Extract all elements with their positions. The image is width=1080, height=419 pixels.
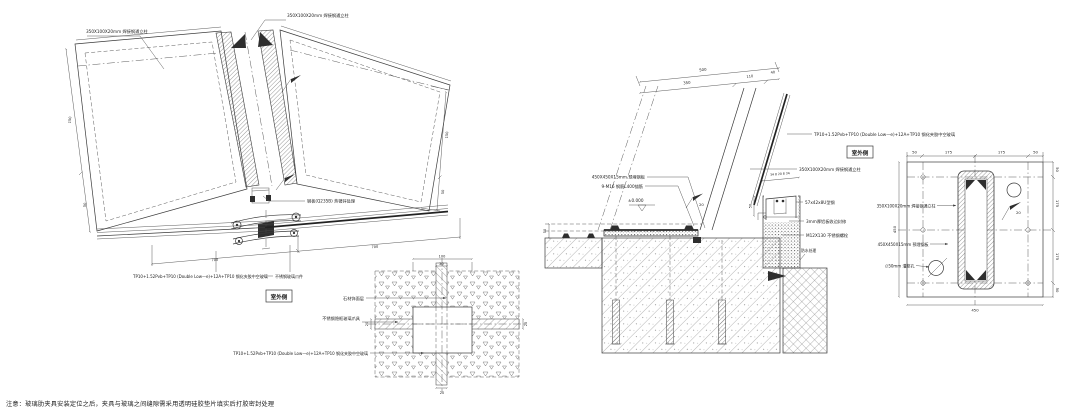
mullion-annotation: 350X100X20mm 焊接钢通立柱: [287, 12, 349, 19]
clamp-annotation: 不锈钢玻璃爪件: [275, 273, 303, 279]
dim-text: 50: [749, 204, 753, 208]
dim-text: 50: [1033, 150, 1038, 155]
glass-spec-annotation: TP10+1.52Pvb+TP10 (Double Low—e)+12A+TP1…: [132, 273, 268, 279]
drawing-canvas: 150 50 700 700 150 50 350X100X20mm 焊接钢通立…: [0, 0, 1080, 419]
detail-ridge-joint-view: 150 50 700 700 150 50 350X100X20mm 焊接钢通立…: [66, 12, 460, 302]
dim-text: 175: [1055, 253, 1060, 261]
detail-embed-plate-plan: 20 50 175 175 50 50 175 175 50 450 450 3…: [877, 150, 1060, 313]
clamp-body-plan: [413, 307, 472, 353]
mullion-base-connector: [250, 188, 271, 203]
svg-text:20: 20: [1016, 210, 1021, 215]
dim-text: 50: [441, 190, 445, 195]
dim-text: 34 8 20 8 34: [770, 171, 790, 177]
dim-text: 50: [83, 202, 88, 207]
slab-hatch: [545, 238, 602, 268]
dim-text: 50: [1055, 288, 1060, 293]
hole-annotation: ∅50mm 灌浆孔: [885, 263, 915, 269]
dimension-lines: 500 350 110 40 34 8 20 8 34 50 50: [543, 62, 799, 238]
dim-text: 150: [68, 116, 73, 123]
trim-annotation: 3mm厚铝板收边封修: [806, 218, 847, 225]
weld-mark: [231, 34, 246, 48]
weld-flag-icon: 20: [1002, 202, 1021, 220]
sheet-note: 注意：玻璃肋夹具安装定位之后，夹具与玻璃之间缝隙需采用透明硅胶垫片填实后打胶密封…: [6, 399, 274, 408]
embed-annotation: 450X450X15mm 预埋钢板: [878, 241, 929, 247]
plate-hole: [1007, 183, 1021, 197]
mullion-annotation: 350X100X20mm 焊接钢通立柱: [877, 203, 936, 209]
dim-text: 150: [445, 131, 449, 138]
waterproof-annotation: 防水处理: [801, 248, 816, 253]
mullion-tube-section: [958, 171, 994, 289]
dim-text: 175: [998, 150, 1006, 155]
dim-text: 450: [971, 308, 979, 313]
svg-text:室外侧: 室外侧: [852, 149, 869, 157]
dim-text: 20: [440, 391, 444, 395]
dim-text: 450: [892, 225, 897, 233]
dim-text: 350: [683, 80, 691, 86]
dim-text: 100: [439, 255, 446, 259]
clamp-annotation: 不锈钢隐框玻璃爪具: [322, 315, 361, 322]
cad-detail-sheet: 150 50 700 700 150 50 350X100X20mm 焊接钢通立…: [0, 0, 1080, 419]
dim-text: 50: [543, 229, 547, 233]
dim-text: 700: [211, 258, 218, 263]
dim-text: 175: [1055, 200, 1060, 208]
mullion-annotation: 350X100X20mm 焊接钢通立柱: [86, 28, 148, 35]
outdoor-side-tag: 室外侧: [266, 290, 292, 302]
foundation-hatch: [602, 238, 780, 353]
dim-text: 175: [945, 150, 953, 155]
glass-spec-annotation: TP10+1.52Pvb+TP10 (Double Low—e)+12A+TP1…: [813, 131, 955, 138]
svg-text:室外侧: 室外侧: [271, 293, 288, 301]
dim-text: 40: [770, 70, 775, 74]
glass-shoe-channel: [758, 194, 799, 222]
svg-text:20: 20: [699, 202, 704, 207]
glass-spec-annotation: TP10+1.52Pvb+TP10 (Double Low—e)+12A+TP1…: [232, 350, 368, 356]
weld-flag-icon: 20: [686, 194, 704, 209]
dim-text: 20: [524, 322, 528, 326]
dim-text: 20: [439, 262, 443, 266]
dim-text: 50: [1055, 167, 1060, 172]
grout-hole: [928, 258, 947, 277]
channel-annotation: 57x42x8U型钢: [805, 199, 835, 206]
bolt-annotation: M12X130 不锈钢螺栓: [806, 232, 849, 239]
dim-text: 500: [699, 67, 707, 73]
masonry-hatch: [783, 268, 827, 353]
mullion-hatch-right: [258, 30, 297, 185]
glass-clamp-assembly: [231, 210, 301, 249]
dim-text: 50: [912, 150, 917, 155]
dim-text: 110: [746, 74, 753, 79]
embed-annotation: 450X450X15mm 预埋钢板: [592, 174, 646, 181]
outdoor-side-tag: 室外侧: [847, 146, 873, 158]
inclined-glass-unit: [751, 93, 790, 206]
dim-text: 700: [371, 245, 378, 250]
mullion-hatch-left: [216, 32, 259, 187]
mullion-annotation: 350X100X20mm 焊接钢通立柱: [799, 166, 861, 173]
svg-text:±0.000: ±0.000: [628, 198, 644, 203]
elevation-mark: ±0.000: [628, 198, 655, 211]
dim-text: 20: [365, 322, 369, 326]
steel-plate-annotation: 钢板(Q235B) 热镀锌处理: [307, 198, 356, 205]
finish-annotation: 石材饰面层: [343, 295, 364, 302]
anchor-annotation: 9-M16 钢筋L400锚筋: [601, 183, 643, 190]
